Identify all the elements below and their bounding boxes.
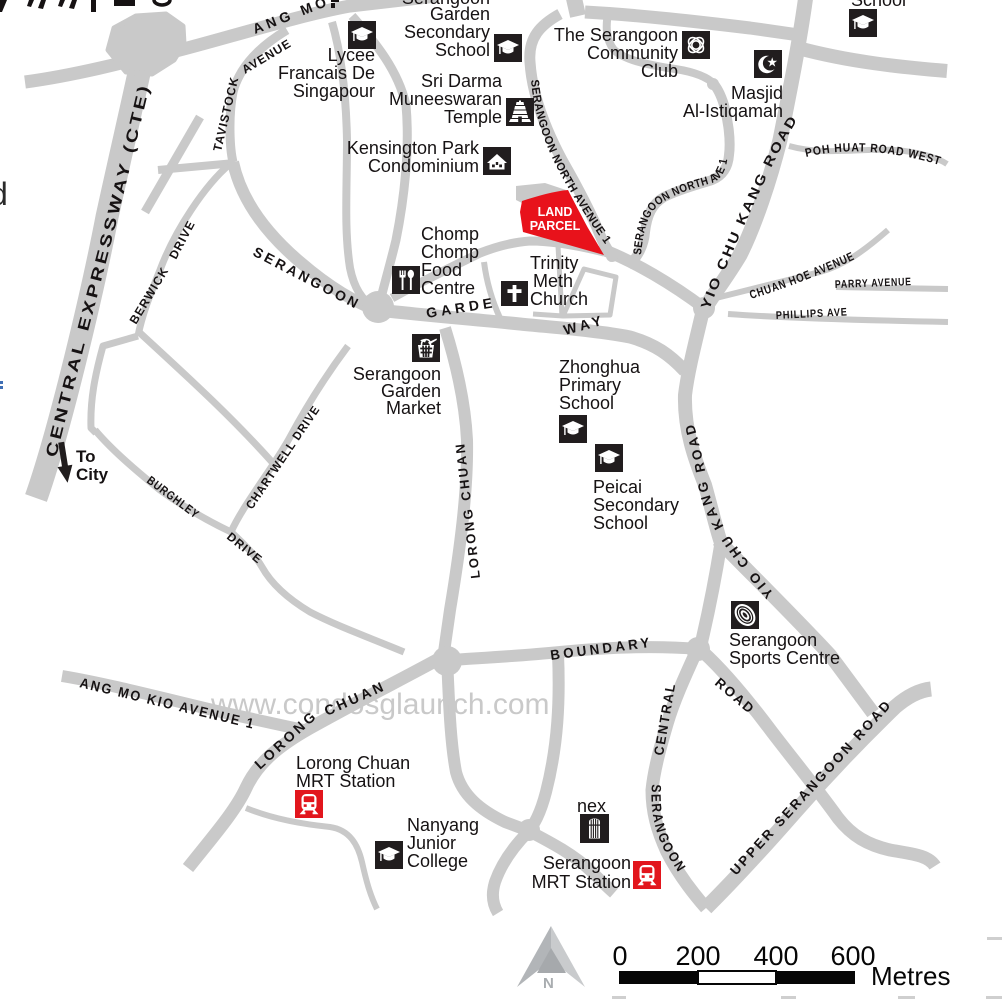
- svg-text:nex: nex: [577, 796, 606, 816]
- svg-text:600: 600: [830, 941, 875, 971]
- svg-text:Metres: Metres: [871, 961, 950, 991]
- svg-text:School: School: [851, 0, 906, 10]
- svg-text:LAND: LAND: [538, 205, 573, 219]
- svg-text:d: d: [0, 176, 8, 212]
- svg-text:200: 200: [675, 941, 720, 971]
- svg-text:Lorong ChuanMRT Station: Lorong ChuanMRT Station: [296, 753, 410, 791]
- svg-text:City: City: [76, 465, 109, 484]
- svg-text:To: To: [76, 447, 96, 466]
- svg-text:400: 400: [753, 941, 798, 971]
- svg-text:PARCEL: PARCEL: [530, 219, 581, 233]
- svg-text:SerangoonMRT Station: SerangoonMRT Station: [532, 853, 631, 892]
- svg-text:0: 0: [612, 941, 627, 971]
- svg-text:ChompChompFoodCentre: ChompChompFoodCentre: [421, 224, 479, 298]
- svg-text:N: N: [543, 975, 554, 992]
